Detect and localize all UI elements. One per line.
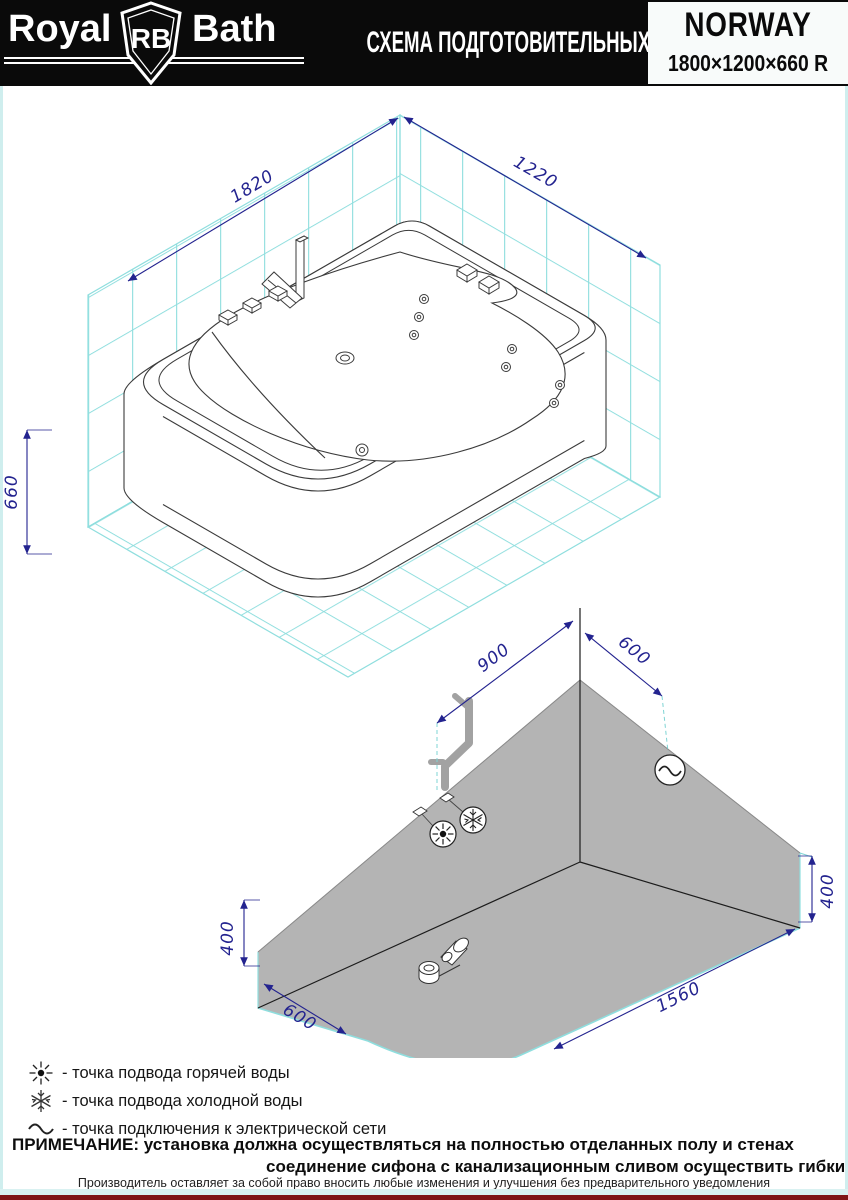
dim-label-height-right: 400 xyxy=(818,873,838,908)
model-name: NORWAY xyxy=(666,6,830,45)
hot-water-icon xyxy=(20,1060,62,1086)
legend-item-cold-water: - точка подвода холодной воды xyxy=(20,1088,302,1114)
header-bar: Royal Bath RB СХЕМА ПОДГОТОВИТЕЛЬНЫХ РАБ… xyxy=(0,0,848,86)
model-size: 1800×1200×660 R xyxy=(664,50,832,77)
legend-label: - точка подвода холодной воды xyxy=(62,1092,302,1111)
brand-royal: Royal xyxy=(8,8,111,51)
prep-zone-drawing: 900 600 400 600 1560 400 xyxy=(218,608,838,1058)
electrical-point xyxy=(655,755,685,785)
dim-label-height: 660 xyxy=(2,474,22,509)
sheet-title: СХЕМА ПОДГОТОВИТЕЛЬНЫХ РАБОТ xyxy=(367,26,584,60)
model-box: NORWAY 1800×1200×660 R xyxy=(648,2,848,84)
drain-hole xyxy=(341,355,350,361)
installation-drawings: 1820 1220 660 xyxy=(0,86,848,1058)
brand-rb-monogram: RB xyxy=(131,23,171,54)
dim-label-wall-left: 900 xyxy=(474,639,514,676)
installation-sheet: Royal Bath RB СХЕМА ПОДГОТОВИТЕЛЬНЫХ РАБ… xyxy=(0,0,848,1200)
legend-item-hot-water: - точка подвода горячей воды xyxy=(20,1060,290,1086)
page-border-left xyxy=(0,86,3,1200)
brand-bath: Bath xyxy=(192,8,276,51)
manufacturer-disclaimer: Производитель оставляет за собой право в… xyxy=(0,1176,848,1190)
note-line-1: ПРИМЕЧАНИЕ: установка должна осуществлят… xyxy=(12,1135,794,1155)
dim-label-height-left: 400 xyxy=(218,920,238,955)
legend-label: - точка подвода горячей воды xyxy=(62,1064,290,1083)
cold-water-icon xyxy=(20,1088,62,1114)
bottom-red-band xyxy=(0,1195,848,1200)
brand-shield-logo: RB xyxy=(110,1,192,85)
note-line-2: соединение сифона с канализационным слив… xyxy=(266,1157,848,1177)
shower-wand xyxy=(296,236,304,302)
dim-label-wall-right: 600 xyxy=(614,632,654,670)
bathtub-isometric-drawing: 1820 1220 660 xyxy=(2,115,660,677)
